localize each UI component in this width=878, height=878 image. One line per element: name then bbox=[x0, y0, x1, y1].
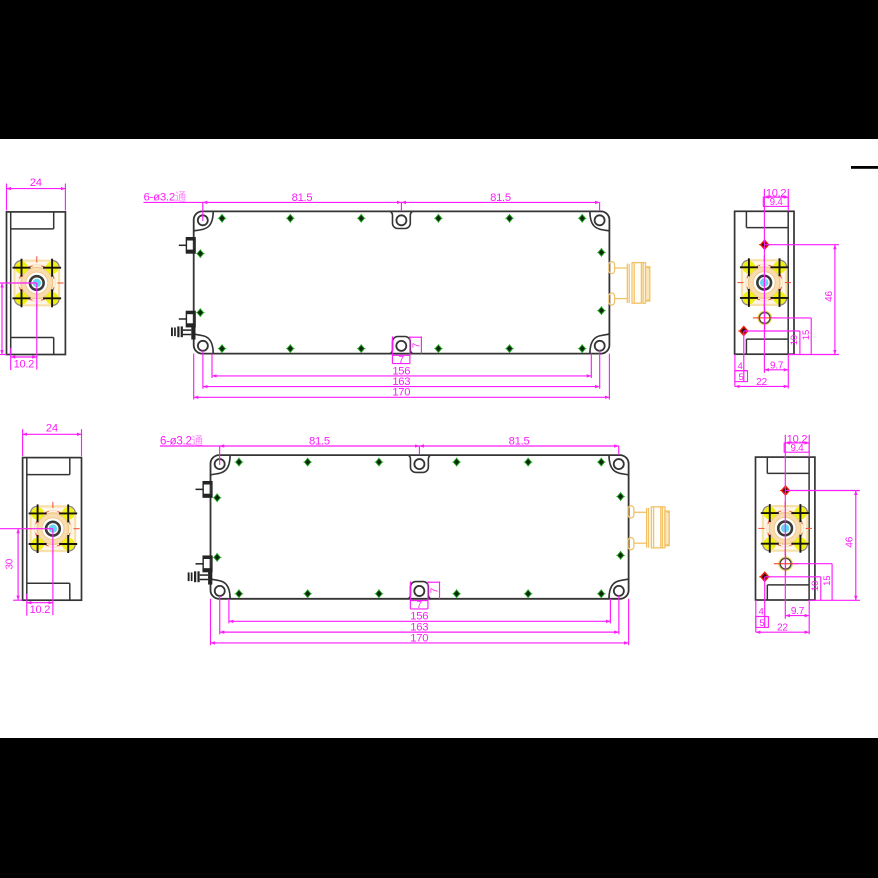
svg-text:46: 46 bbox=[845, 536, 856, 547]
svg-text:10.2: 10.2 bbox=[14, 358, 35, 370]
svg-text:10: 10 bbox=[789, 335, 800, 345]
svg-text:9.4: 9.4 bbox=[770, 197, 784, 208]
svg-text:5: 5 bbox=[738, 372, 743, 383]
svg-text:6-ø3.2通: 6-ø3.2通 bbox=[144, 191, 187, 204]
svg-text:24: 24 bbox=[46, 423, 58, 435]
svg-text:46: 46 bbox=[824, 291, 835, 302]
svg-text:30: 30 bbox=[5, 558, 16, 569]
svg-text:7: 7 bbox=[417, 600, 423, 611]
svg-text:7: 7 bbox=[411, 342, 422, 348]
svg-text:7: 7 bbox=[429, 587, 440, 593]
svg-text:24: 24 bbox=[30, 177, 42, 189]
svg-text:7: 7 bbox=[399, 355, 405, 366]
svg-text:10: 10 bbox=[810, 581, 821, 591]
svg-text:10.2: 10.2 bbox=[30, 604, 51, 616]
svg-text:6-ø3.2通: 6-ø3.2通 bbox=[160, 434, 204, 447]
svg-text:15: 15 bbox=[801, 330, 812, 340]
svg-text:15: 15 bbox=[822, 576, 833, 586]
svg-text:9.4: 9.4 bbox=[791, 443, 805, 454]
svg-text:5: 5 bbox=[759, 618, 764, 629]
